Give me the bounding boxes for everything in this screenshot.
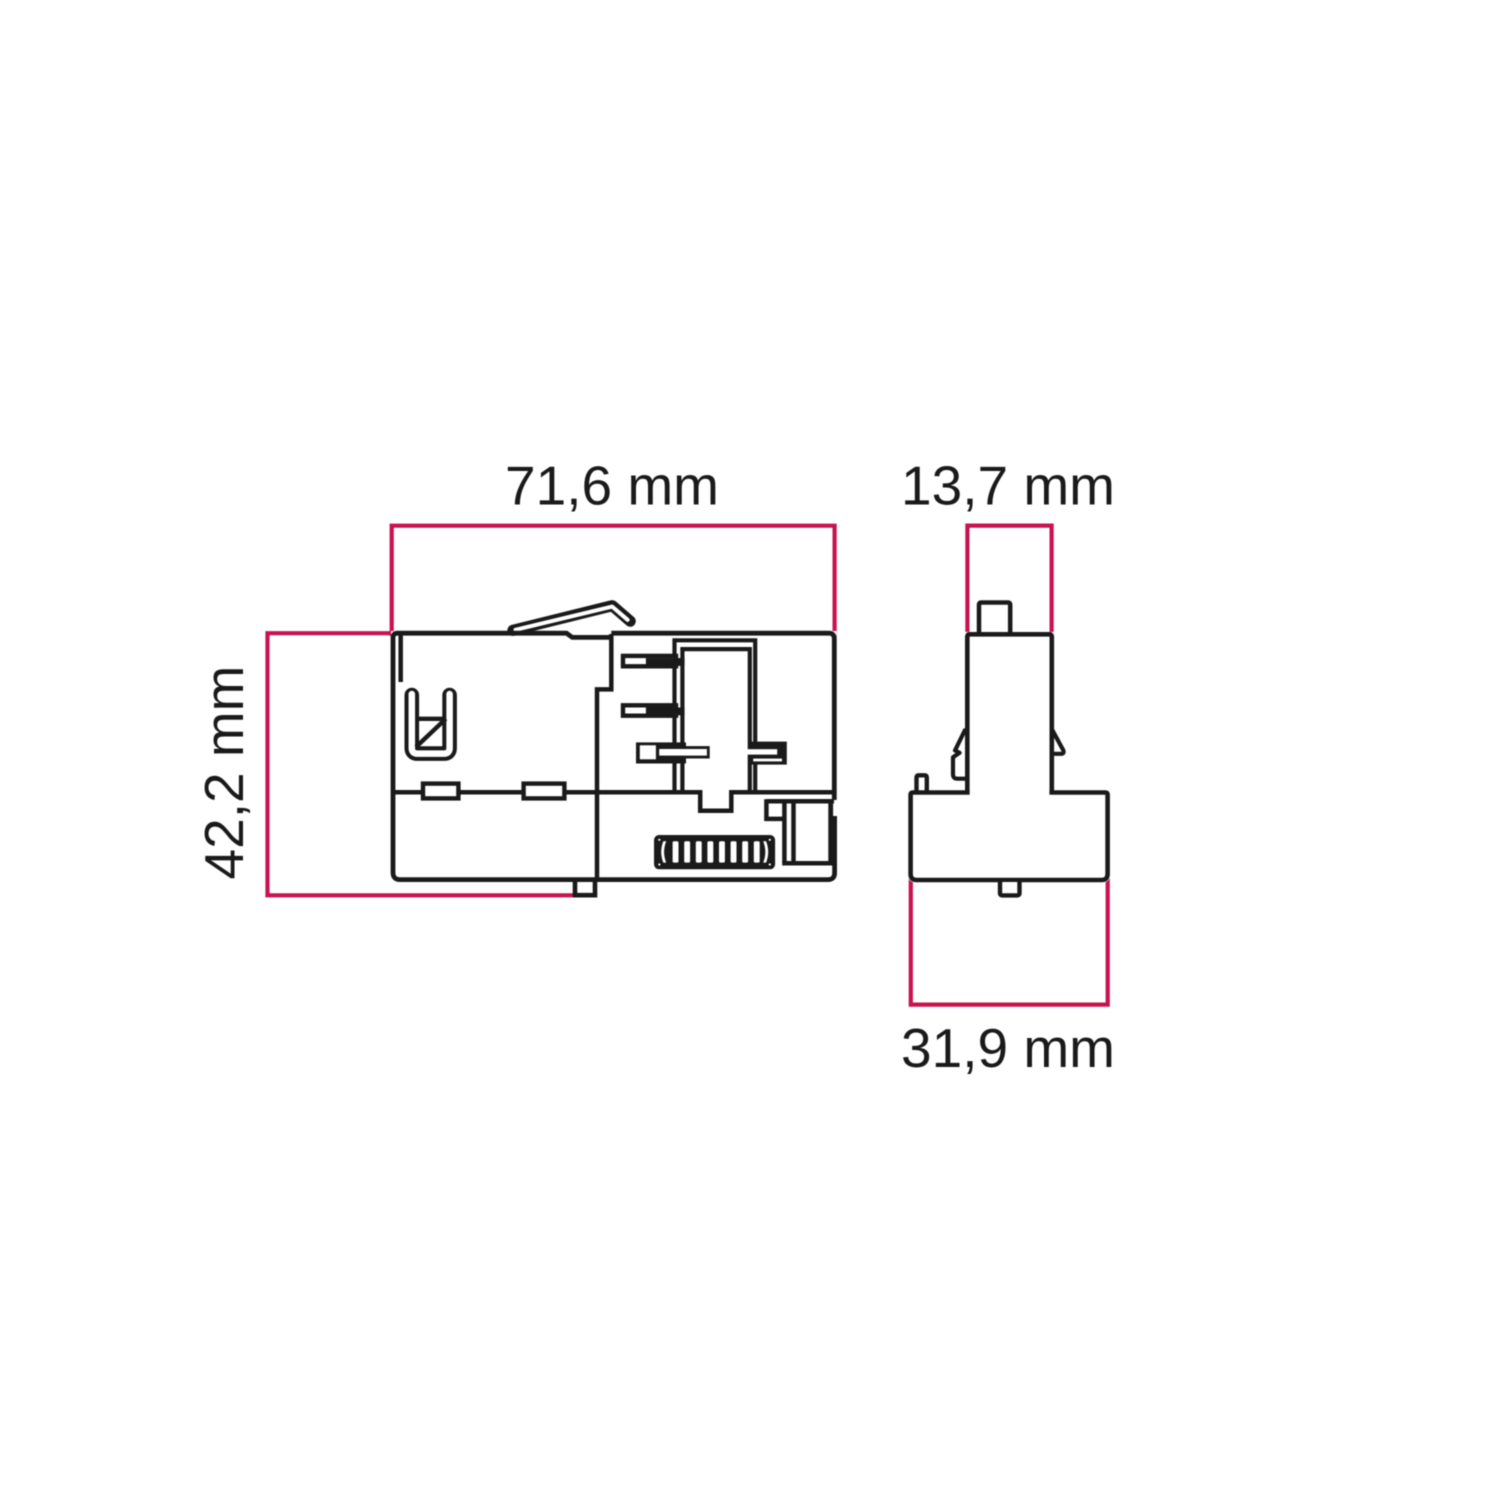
svg-text:31,9 mm: 31,9 mm: [901, 1017, 1115, 1079]
svg-text:13,7 mm: 13,7 mm: [901, 455, 1115, 517]
svg-text:42,2 mm: 42,2 mm: [193, 666, 255, 880]
svg-text:71,6 mm: 71,6 mm: [505, 455, 719, 517]
